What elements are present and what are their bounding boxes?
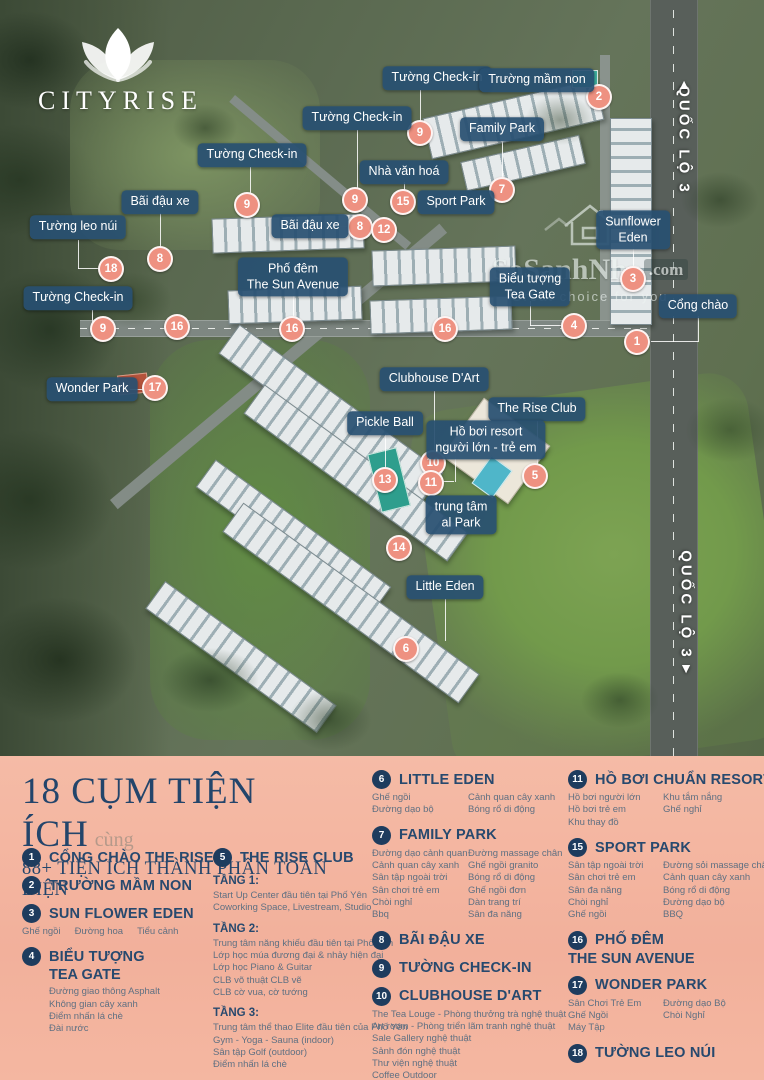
map-badge-13: 13 — [372, 467, 398, 493]
map-badge-11: 11 — [418, 470, 444, 496]
legend-item-features: Ghế ngồiĐường dạo bộCảnh quan cây xanhBó… — [372, 792, 564, 817]
map-badge-4: 4 — [561, 313, 587, 339]
legend-section-lines: Trung tâm thể thao Elite đầu tiên của Ph… — [213, 1022, 378, 1071]
legend-item-title: TƯỜNG LEO NÚI — [595, 1045, 715, 1061]
legend-item-number: 3 — [22, 904, 41, 923]
legend-item-title: WONDER PARK — [595, 977, 707, 993]
legend-item-features: Hồ bơi người lớnHồ bơi trẻ emKhu thay đồ… — [568, 792, 758, 829]
legend-item-features: Đường dạo cảnh quanCảnh quan cây xanhSân… — [372, 848, 564, 922]
legend-item-header: 3SUN FLOWER EDEN — [22, 904, 207, 923]
map-callout: Tường Check-in — [24, 286, 133, 310]
highway-label: QUỐC LỘ 3 — [676, 85, 693, 195]
legend-item-features: Sân tập ngoài trờiSân chơi trẻ emSân đa … — [568, 860, 758, 922]
legend-item-header: 5THE RISE CLUB — [213, 848, 378, 867]
legend-item-header: 8BÃI ĐẬU XE — [372, 931, 564, 950]
map-callout: Tường Check-in — [198, 143, 307, 167]
legend-item-7: 7FAMILY PARKĐường dạo cảnh quanCảnh quan… — [372, 826, 564, 922]
map-callout: Cổng chào — [659, 294, 737, 318]
map-badge-5: 5 — [522, 463, 548, 489]
legend-item-number: 8 — [372, 931, 391, 950]
legend-item-9: 9TƯỜNG CHECK-IN — [372, 959, 564, 978]
legend-item-header: 15SPORT PARK — [568, 838, 758, 857]
legend-item-title: TƯỜNG CHECK-IN — [399, 960, 532, 976]
legend-item-8: 8BÃI ĐẬU XE — [372, 931, 564, 950]
legend-item-header: 6LITTLE EDEN — [372, 770, 564, 789]
legend-item-number: 18 — [568, 1044, 587, 1063]
legend-item-title: THE RISE CLUB — [240, 850, 354, 866]
map-badge-16: 16 — [164, 314, 190, 340]
leader-line — [78, 240, 79, 269]
legend-item-title-line2: THE SUN AVENUE — [568, 951, 758, 967]
highway-label: QUỐC LỘ 3 — [678, 550, 695, 660]
map-badge-3: 3 — [620, 266, 646, 292]
legend-item-header: 4BIỂU TƯỢNG — [22, 947, 207, 966]
map-callout: Clubhouse D'Art — [380, 367, 489, 391]
map-callout: Phố đêmThe Sun Avenue — [238, 257, 348, 296]
legend-item-11: 11HỒ BƠI CHUẨN RESORTHồ bơi người lớnHồ … — [568, 770, 758, 829]
legend-item-features: Sân Chơi Trẻ EmGhế NgồiMáy TậpĐường dạo … — [568, 998, 758, 1035]
legend-title-main: 18 CỤM TIỆN ÍCH — [22, 771, 256, 855]
map-badge-9: 9 — [342, 187, 368, 213]
legend-item-17: 17WONDER PARKSân Chơi Trẻ EmGhế NgồiMáy … — [568, 976, 758, 1035]
legend-item-title: CLUBHOUSE D'ART — [399, 988, 542, 1004]
legend-item-header: 1CỔNG CHÀO THE RISE — [22, 848, 207, 867]
legend-item-header: 18TƯỜNG LEO NÚI — [568, 1044, 758, 1063]
legend-item-title: HỒ BƠI CHUẨN RESORT — [595, 772, 764, 788]
map-callout: The Rise Club — [488, 397, 585, 421]
legend-item-number: 1 — [22, 848, 41, 867]
legend-section-lines: Start Up Center đầu tiên tại Phố YênCowo… — [213, 890, 378, 915]
legend-section-heading: TẦNG 1: — [213, 875, 378, 887]
legend-item-15: 15SPORT PARKSân tập ngoài trờiSân chơi t… — [568, 838, 758, 922]
legend-item-10: 10CLUBHOUSE D'ARTThe Tea Louge - Phòng t… — [372, 987, 564, 1080]
legend-item-header: 9TƯỜNG CHECK-IN — [372, 959, 564, 978]
legend-item-18: 18TƯỜNG LEO NÚI — [568, 1044, 758, 1063]
legend-item-5: 5THE RISE CLUBTẦNG 1:Start Up Center đầu… — [213, 848, 378, 1072]
legend-item-header: 16PHỐ ĐÊM — [568, 931, 758, 950]
legend-section-heading: TẦNG 3: — [213, 1007, 378, 1019]
map-callout: Bãi đậu xe — [121, 190, 198, 214]
map-callout: Sport Park — [417, 190, 494, 214]
legend-section-heading: TẦNG 2: — [213, 923, 378, 935]
leader-line — [455, 456, 456, 482]
map-callout: Trường mầm non — [479, 68, 594, 92]
map-badge-18: 18 — [98, 256, 124, 282]
legend-item-header: 2TRƯỜNG MẦM NON — [22, 876, 207, 895]
legend-item-number: 15 — [568, 838, 587, 857]
legend-item-number: 2 — [22, 876, 41, 895]
map-callout: Pickle Ball — [347, 411, 423, 435]
legend-item-title: TRƯỜNG MẦM NON — [49, 878, 192, 894]
map-badge-12: 12 — [371, 217, 397, 243]
map-badge-15: 15 — [390, 189, 416, 215]
leader-line — [445, 599, 446, 641]
legend-item-features: Đường giao thông AsphaltKhông gian cây x… — [49, 986, 207, 1035]
legend-item-number: 17 — [568, 976, 587, 995]
map-badge-9: 9 — [90, 316, 116, 342]
map-callout: Tường Check-in — [303, 106, 412, 130]
map-callout: Tường leo núi — [30, 215, 126, 239]
legend-item-number: 7 — [372, 826, 391, 845]
leader-line — [502, 141, 503, 182]
map-callout: Nhà văn hoá — [360, 160, 449, 184]
brand-logo: CITYRISE — [38, 22, 198, 116]
map-callout: Tường Check-in — [383, 66, 492, 90]
aerial-masterplan-map: CITYRISE SoSanhNha.com Great choice for … — [0, 0, 764, 756]
legend-item-features: Ghế ngồiĐường hoaTiểu cảnh — [22, 926, 207, 938]
legend-column-2: 5THE RISE CLUBTẦNG 1:Start Up Center đầu… — [213, 848, 378, 1080]
legend-item-2: 2TRƯỜNG MẦM NON — [22, 876, 207, 895]
legend-item-title: CỔNG CHÀO THE RISE — [49, 850, 214, 866]
legend-item-1: 1CỔNG CHÀO THE RISE — [22, 848, 207, 867]
legend-item-number: 16 — [568, 931, 587, 950]
legend-item-number: 11 — [568, 770, 587, 789]
legend-item-16: 16PHỐ ĐÊMTHE SUN AVENUE — [568, 931, 758, 967]
map-callout: trung tâmal Park — [426, 495, 497, 534]
legend-column-3: 6LITTLE EDENGhế ngồiĐường dạo bộCảnh qua… — [372, 770, 564, 1080]
legend-column-1: 1CỔNG CHÀO THE RISE2TRƯỜNG MẦM NON3SUN F… — [22, 848, 207, 1045]
leader-line — [357, 130, 358, 192]
map-callout: Little Eden — [406, 575, 483, 599]
highway-direction-arrow: ▲ — [677, 76, 691, 92]
map-badge-16: 16 — [279, 316, 305, 342]
legend-item-title: BIỂU TƯỢNG — [49, 949, 145, 965]
map-callout: Hồ bơi resortngười lớn - trẻ em — [426, 420, 545, 459]
legend-item-number: 6 — [372, 770, 391, 789]
map-badge-17: 17 — [142, 375, 168, 401]
legend-item-number: 4 — [22, 947, 41, 966]
legend-item-features: The Tea Louge - Phòng thưởng trà nghệ th… — [372, 1009, 564, 1080]
map-badge-1: 1 — [624, 329, 650, 355]
legend-item-header: 17WONDER PARK — [568, 976, 758, 995]
legend-item-title: SUN FLOWER EDEN — [49, 906, 194, 922]
legend-section-lines: Trung tâm năng khiếu đầu tiên tại Phố Yê… — [213, 938, 378, 1000]
map-callout: Family Park — [460, 117, 544, 141]
legend-item-3: 3SUN FLOWER EDENGhế ngồiĐường hoaTiểu cả… — [22, 904, 207, 938]
map-badge-8: 8 — [147, 246, 173, 272]
map-badge-6: 6 — [393, 636, 419, 662]
highway-direction-arrow: ▼ — [679, 660, 693, 676]
map-callout: SunflowerEden — [596, 210, 670, 249]
map-badge-16: 16 — [432, 316, 458, 342]
legend-item-header: 11HỒ BƠI CHUẨN RESORT — [568, 770, 758, 789]
legend-item-title: FAMILY PARK — [399, 827, 497, 843]
legend-item-header: 7FAMILY PARK — [372, 826, 564, 845]
leader-line — [698, 316, 699, 342]
legend-item-4: 4BIỂU TƯỢNGTEA GATEĐường giao thông Asph… — [22, 947, 207, 1035]
legend-item-title: LITTLE EDEN — [399, 772, 495, 788]
map-badge-9: 9 — [234, 192, 260, 218]
legend-item-header: 10CLUBHOUSE D'ART — [372, 987, 564, 1006]
legend-item-number: 9 — [372, 959, 391, 978]
map-callout: Bãi đậu xe — [271, 214, 348, 238]
lotus-logo-icon — [72, 22, 164, 84]
leader-line — [651, 341, 698, 342]
masterplan-poster: CITYRISE SoSanhNha.com Great choice for … — [0, 0, 764, 1080]
watermark-com-tag: .com — [644, 259, 688, 280]
legend-item-title: SPORT PARK — [595, 840, 691, 856]
brand-name: CITYRISE — [38, 86, 198, 116]
legend-item-number: 5 — [213, 848, 232, 867]
legend-item-title: BÃI ĐẬU XE — [399, 932, 485, 948]
map-callout: Biểu tượngTea Gate — [490, 267, 570, 306]
map-badge-8: 8 — [347, 214, 373, 240]
legend-item-title-line2: TEA GATE — [49, 967, 207, 983]
legend-panel: 18 CỤM TIỆN ÍCHcùng 88+ TIỆN ÍCH THÀNH P… — [0, 756, 764, 1080]
map-callout: Wonder Park — [47, 377, 138, 401]
legend-column-4: 11HỒ BƠI CHUẨN RESORTHồ bơi người lớnHồ … — [568, 770, 758, 1072]
legend-item-title: PHỐ ĐÊM — [595, 932, 664, 948]
legend-item-6: 6LITTLE EDENGhế ngồiĐường dạo bộCảnh qua… — [372, 770, 564, 817]
legend-item-number: 10 — [372, 987, 391, 1006]
map-badge-14: 14 — [386, 535, 412, 561]
